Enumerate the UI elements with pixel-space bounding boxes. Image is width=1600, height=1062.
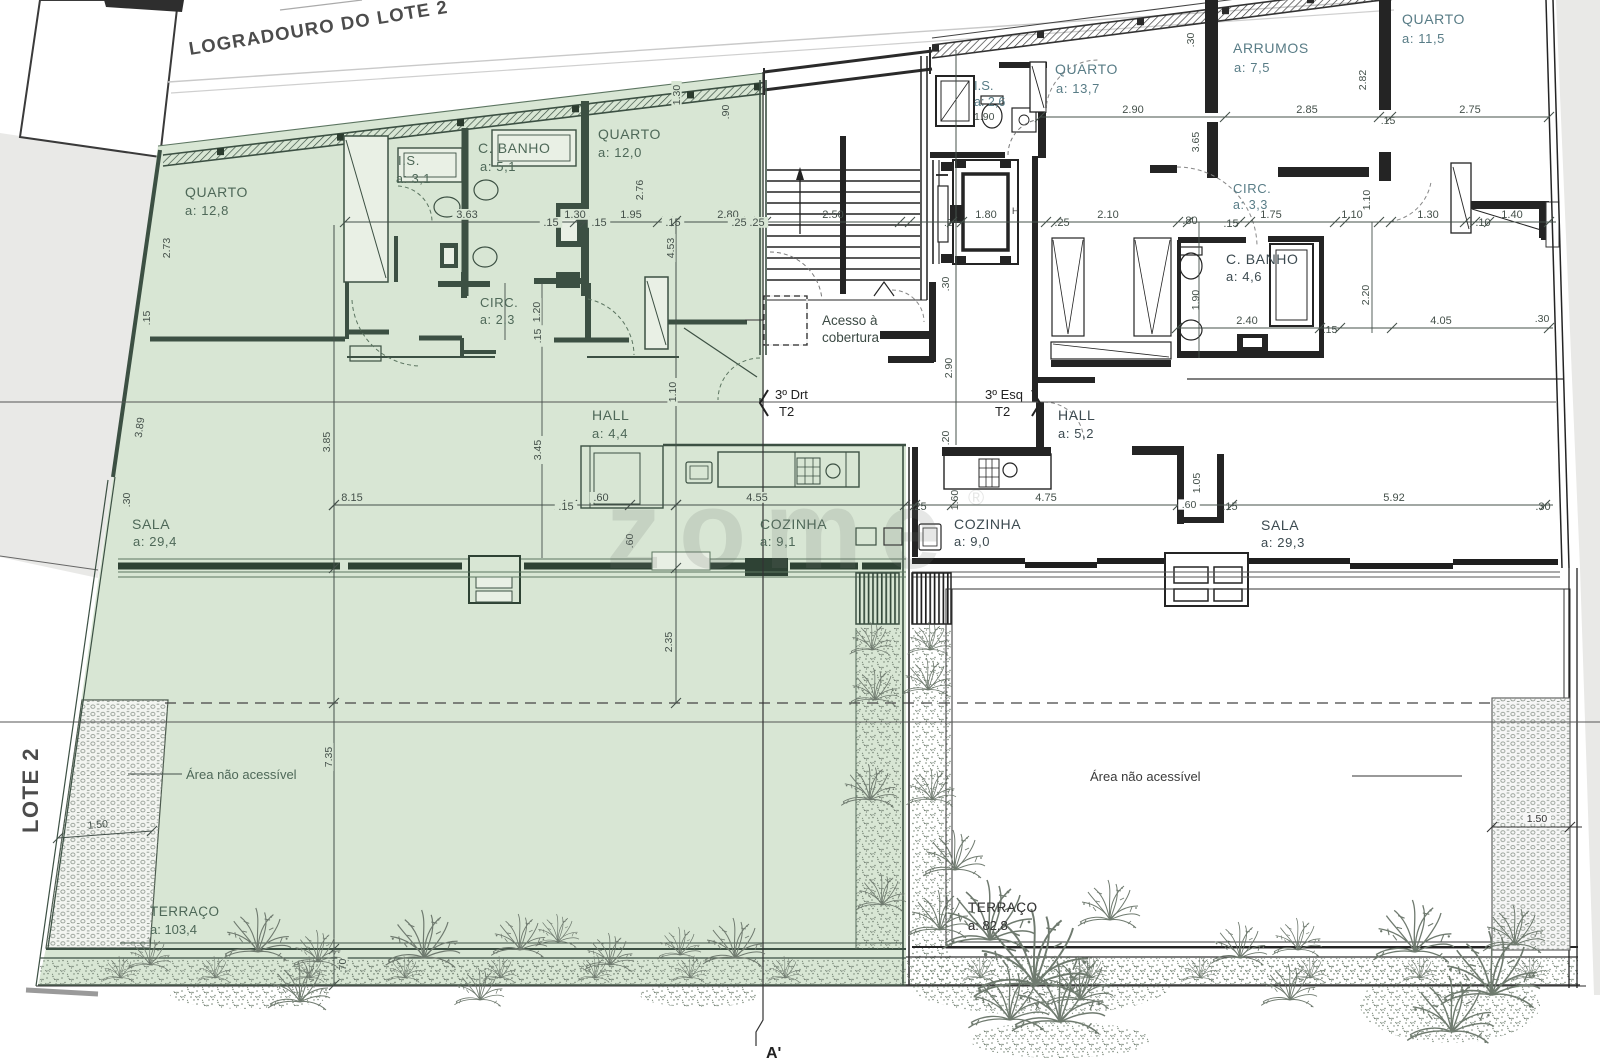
svg-text:a: 5,2: a: 5,2 <box>1058 426 1094 441</box>
svg-text:3º Esq: 3º Esq <box>985 387 1023 402</box>
svg-text:zome: zome <box>606 469 959 592</box>
svg-text:a: 13,7: a: 13,7 <box>1056 81 1100 96</box>
svg-text:1.50: 1.50 <box>87 818 109 832</box>
svg-text:.15: .15 <box>141 311 153 326</box>
svg-text:T2: T2 <box>779 404 794 419</box>
svg-text:1.10: 1.10 <box>1361 190 1373 211</box>
svg-text:.90: .90 <box>720 105 732 120</box>
svg-text:a: 4,4: a: 4,4 <box>592 426 628 441</box>
svg-text:3.65: 3.65 <box>1190 132 1202 153</box>
svg-text:a: 82,8: a: 82,8 <box>968 918 1008 933</box>
svg-text:a: 103,4: a: 103,4 <box>150 922 197 937</box>
svg-text:a: 11,5: a: 11,5 <box>1402 31 1445 46</box>
svg-text:TERRAÇO: TERRAÇO <box>968 900 1038 915</box>
svg-text:QUARTO: QUARTO <box>1055 61 1118 77</box>
svg-text:.80: .80 <box>1182 215 1197 227</box>
svg-text:.30: .30 <box>1535 501 1550 513</box>
svg-text:a: 29,3: a: 29,3 <box>1261 535 1305 550</box>
svg-text:®: ® <box>968 485 984 510</box>
svg-text:3.63: 3.63 <box>456 209 477 221</box>
svg-text:2.85: 2.85 <box>1296 104 1317 116</box>
svg-text:.30: .30 <box>940 277 952 292</box>
svg-text:Acesso à: Acesso à <box>822 313 878 328</box>
svg-text:2.76: 2.76 <box>634 180 646 201</box>
svg-text:Área não acessível: Área não acessível <box>1090 769 1201 784</box>
svg-text:a: 29,4: a: 29,4 <box>133 534 177 549</box>
svg-text:C. BANHO: C. BANHO <box>478 140 550 156</box>
svg-text:2.90: 2.90 <box>1122 104 1143 116</box>
svg-text:I.S.: I.S. <box>974 78 994 93</box>
svg-text:7.35: 7.35 <box>323 747 335 768</box>
svg-text:a: 4,6: a: 4,6 <box>1226 269 1262 284</box>
svg-text:.15: .15 <box>543 217 558 229</box>
svg-text:.10: .10 <box>1475 217 1490 229</box>
svg-text:SALA: SALA <box>1261 517 1299 533</box>
svg-text:.15: .15 <box>591 217 606 229</box>
svg-text:a: 3,3: a: 3,3 <box>1233 198 1268 212</box>
svg-text:5.92: 5.92 <box>1383 492 1404 504</box>
svg-text:4.05: 4.05 <box>1430 315 1451 327</box>
svg-text:2.20: 2.20 <box>1360 285 1372 306</box>
svg-text:a: 12,8: a: 12,8 <box>185 203 229 218</box>
svg-text:.30: .30 <box>121 493 133 508</box>
svg-text:1.10: 1.10 <box>1341 209 1362 221</box>
svg-text:H: H <box>1012 206 1019 216</box>
svg-text:a: 9,0: a: 9,0 <box>954 534 990 549</box>
svg-text:a: 2,6: a: 2,6 <box>974 95 1005 109</box>
svg-text:4.53: 4.53 <box>665 238 677 259</box>
svg-text:8.15: 8.15 <box>341 492 362 504</box>
svg-text:a: 5,1: a: 5,1 <box>480 159 516 174</box>
svg-text:ARRUMOS: ARRUMOS <box>1233 40 1309 56</box>
svg-text:CIRC.: CIRC. <box>480 295 518 310</box>
svg-text:2.75: 2.75 <box>1459 104 1480 116</box>
svg-text:3.45: 3.45 <box>532 440 544 461</box>
svg-text:1.30: 1.30 <box>1417 209 1438 221</box>
svg-text:1.50: 1.50 <box>1527 813 1548 825</box>
svg-text:.15: .15 <box>1223 218 1238 230</box>
svg-text:1.30: 1.30 <box>564 209 585 221</box>
svg-text:.30: .30 <box>1185 33 1197 48</box>
svg-text:.30: .30 <box>1535 313 1550 325</box>
svg-text:T2: T2 <box>995 404 1010 419</box>
svg-text:2.50: 2.50 <box>822 209 843 221</box>
svg-text:.20: .20 <box>940 431 952 446</box>
svg-text:2.40: 2.40 <box>1236 315 1257 327</box>
svg-text:QUARTO: QUARTO <box>1402 11 1465 27</box>
svg-text:Área não acessível: Área não acessível <box>186 767 297 782</box>
svg-text:HALL: HALL <box>592 407 629 423</box>
svg-text:a: 12,0: a: 12,0 <box>598 145 642 160</box>
svg-text:2.90: 2.90 <box>943 358 955 379</box>
svg-text:.25: .25 <box>731 217 746 229</box>
svg-text:cobertura: cobertura <box>822 330 880 345</box>
svg-text:.25: .25 <box>1054 217 1069 229</box>
svg-text:1.90: 1.90 <box>974 111 995 123</box>
svg-text:.15: .15 <box>1381 115 1396 127</box>
svg-text:.25: .25 <box>749 217 764 229</box>
svg-text:1.95: 1.95 <box>620 209 641 221</box>
svg-text:2.82: 2.82 <box>1357 70 1369 91</box>
svg-text:.15: .15 <box>532 329 544 344</box>
svg-text:CIRC.: CIRC. <box>1233 181 1271 196</box>
svg-text:HALL: HALL <box>1058 407 1095 423</box>
svg-text:SALA: SALA <box>132 516 170 532</box>
svg-text:4.75: 4.75 <box>1035 492 1056 504</box>
svg-text:QUARTO: QUARTO <box>185 184 248 200</box>
svg-text:1.05: 1.05 <box>1191 473 1203 494</box>
svg-text:2.35: 2.35 <box>663 632 675 653</box>
svg-text:a: 7,5: a: 7,5 <box>1234 60 1270 75</box>
svg-text:1.20: 1.20 <box>531 302 543 323</box>
svg-text:.60: .60 <box>1182 499 1197 511</box>
svg-text:1.90: 1.90 <box>1190 290 1202 311</box>
svg-text:2.73: 2.73 <box>161 238 173 259</box>
svg-text:C. BANHO: C. BANHO <box>1226 251 1298 267</box>
svg-text:.15: .15 <box>1323 324 1338 336</box>
svg-text:3.85: 3.85 <box>321 432 333 453</box>
svg-text:QUARTO: QUARTO <box>598 126 661 142</box>
svg-text:1.80: 1.80 <box>975 209 996 221</box>
svg-text:a: 2,3: a: 2,3 <box>480 313 515 327</box>
svg-text:COZINHA: COZINHA <box>954 516 1021 532</box>
svg-text:.15: .15 <box>1222 501 1237 513</box>
svg-text:1.30: 1.30 <box>671 85 683 106</box>
svg-text:.15: .15 <box>558 501 573 513</box>
svg-text:LOTE 2: LOTE 2 <box>18 747 43 833</box>
svg-text:a: 3,1: a: 3,1 <box>396 172 431 186</box>
svg-text:I.S.: I.S. <box>398 153 420 168</box>
svg-text:1.10: 1.10 <box>667 382 679 403</box>
svg-text:1.40: 1.40 <box>1501 209 1522 221</box>
svg-text:2.10: 2.10 <box>1097 209 1118 221</box>
svg-text:3º Drt: 3º Drt <box>775 387 808 402</box>
svg-text:A': A' <box>766 1045 781 1062</box>
svg-text:TERRAÇO: TERRAÇO <box>150 904 220 919</box>
